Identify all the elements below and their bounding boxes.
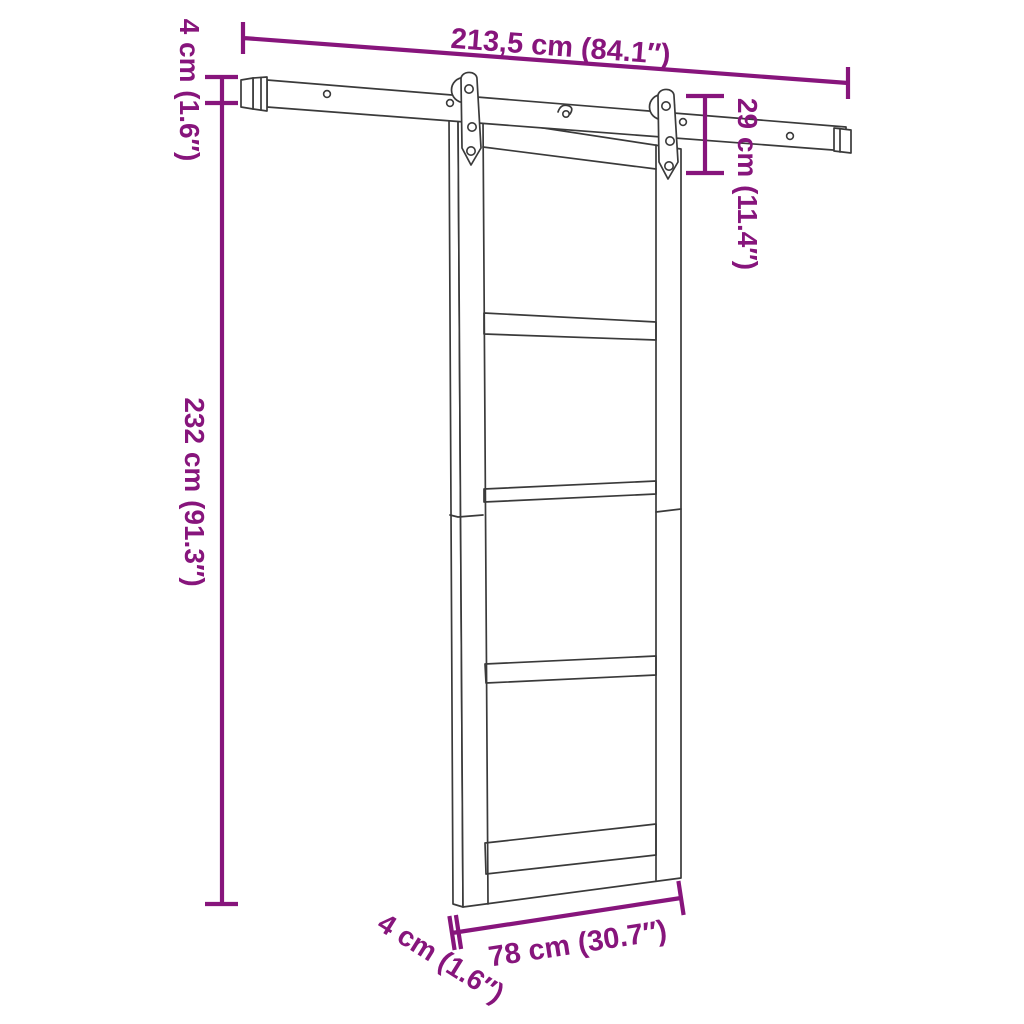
rail-clip-screw <box>563 111 569 117</box>
door-front-face <box>458 115 681 907</box>
rail-height-label: 4 cm (1.6″) <box>174 19 205 162</box>
rail-screw <box>324 91 331 98</box>
hanger-bolt-right <box>665 162 673 170</box>
hanger-bolt-right <box>666 137 674 145</box>
dim-bottom: 78 cm (30.7″) 4 cm (1.6″) <box>372 881 683 1009</box>
diagram-stage: 213,5 cm (84.1″) 4 cm (1.6″) 232 cm (91.… <box>0 0 1024 1024</box>
barn-door <box>449 115 681 907</box>
rail-length-label: 213,5 cm (84.1″) <box>450 23 672 71</box>
hanger-axle-bolt-right <box>662 102 670 110</box>
rail-end-cap-left-ring <box>241 78 253 109</box>
rail-end-cap-left <box>253 77 267 111</box>
dim-left-column: 4 cm (1.6″) 232 cm (91.3″) <box>174 19 238 904</box>
hanger-axle-bolt-left <box>465 85 473 93</box>
rail-screw <box>787 133 794 140</box>
rail-screw <box>680 119 687 126</box>
door-height-label: 232 cm (91.3″) <box>179 397 210 586</box>
dimension-diagram: 213,5 cm (84.1″) 4 cm (1.6″) 232 cm (91.… <box>0 0 1024 1024</box>
drop-height-label: 29 cm (11.4″) <box>732 98 763 270</box>
hanger-bolt-left <box>468 123 476 131</box>
rail-end-cap-right <box>834 128 851 153</box>
hanger-bolt-left <box>467 147 475 155</box>
rail-screw <box>447 100 454 107</box>
